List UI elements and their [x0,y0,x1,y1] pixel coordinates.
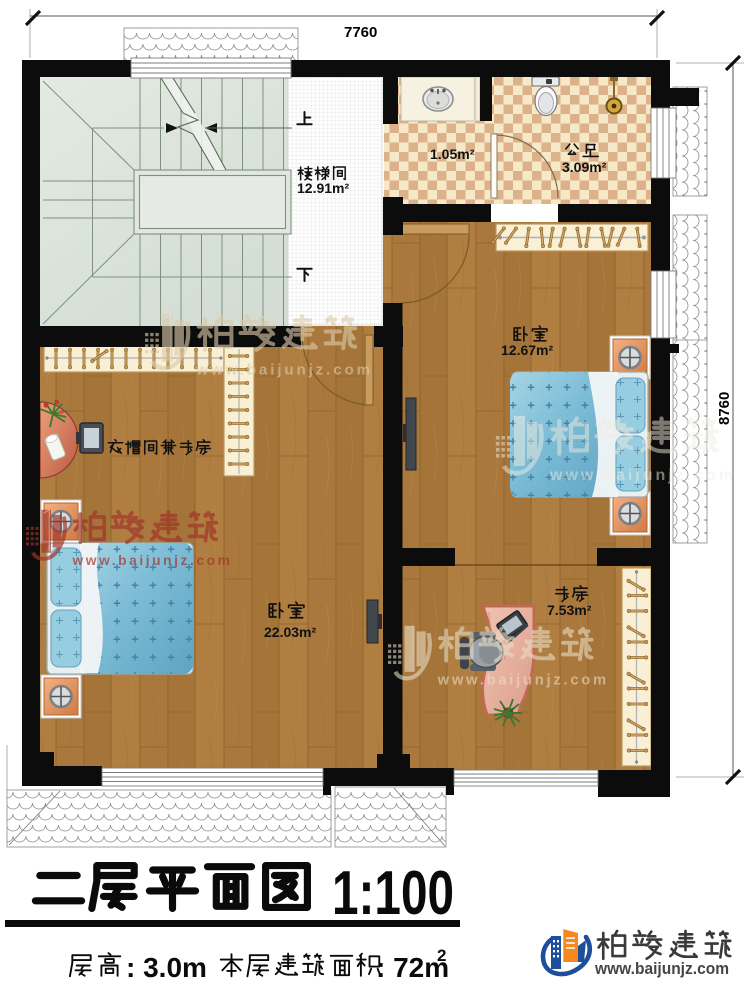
svg-text:www.baijunjz.com: www.baijunjz.com [594,960,729,978]
svg-text:12.67m²: 12.67m² [501,342,553,358]
svg-text:www.baijunjz.com: www.baijunjz.com [195,362,373,379]
svg-text:1:100: 1:100 [332,859,454,928]
svg-text:22.03m²: 22.03m² [264,624,316,640]
svg-text:1.05m²: 1.05m² [430,146,475,162]
svg-text:7.53m²: 7.53m² [547,602,592,618]
svg-text:www.baijunjz.com: www.baijunjz.com [437,673,609,689]
svg-text:www.baijunjz.com: www.baijunjz.com [71,553,232,568]
svg-text:12.91m²: 12.91m² [297,180,349,196]
svg-text:2: 2 [437,946,446,965]
svg-text:7760: 7760 [344,24,377,41]
svg-text:8760: 8760 [716,392,733,425]
svg-text:3.09m²: 3.09m² [562,159,607,175]
svg-text:www.baijunjz.com: www.baijunjz.com [549,467,736,484]
svg-text:: 3.0m: : 3.0m [126,952,207,983]
